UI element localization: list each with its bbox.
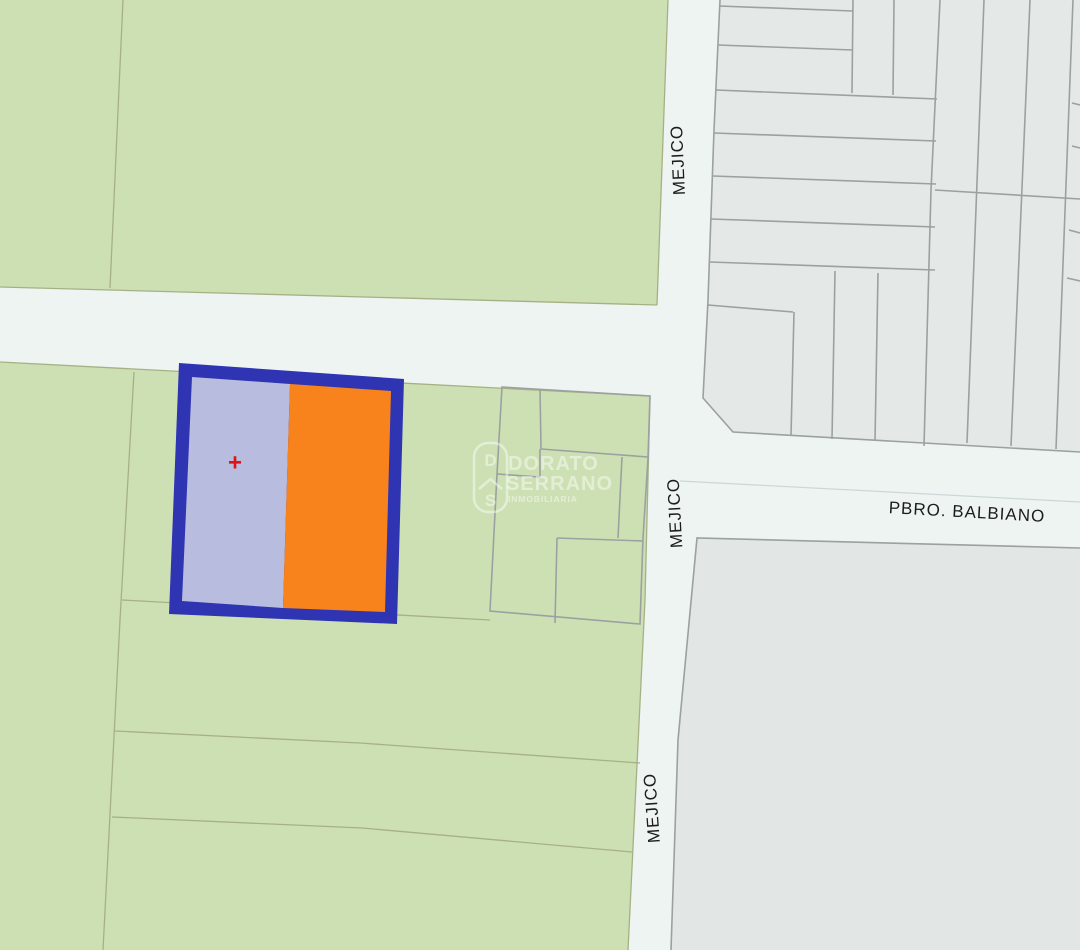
street-label-mejico-middle: MEJICO	[664, 477, 687, 548]
watermark-brand-line3: INMOBILIARIA	[508, 494, 578, 504]
cadastral-map[interactable]: + MEJICO MEJICO MEJICO PBRO. BALBIANO D …	[0, 0, 1080, 950]
watermark-logo-letter-s: S	[485, 491, 496, 510]
watermark-brand-line2: SERRANO	[506, 473, 613, 495]
parcel-highlight[interactable]: +	[169, 363, 404, 624]
street-label-mejico-top: MEJICO	[667, 125, 689, 196]
parcel-highlight-right-half	[283, 384, 391, 612]
parcel-highlight-left-half	[182, 377, 290, 608]
green-block-northwest	[0, 0, 668, 305]
marker-cross: +	[228, 450, 242, 477]
watermark-logo-letter-d: D	[484, 451, 496, 470]
gray-parcel-southeast	[671, 538, 1080, 950]
cadastral-map-viewport[interactable]: + MEJICO MEJICO MEJICO PBRO. BALBIANO D …	[0, 0, 1080, 950]
watermark-brand-line1: DORATO	[508, 453, 599, 475]
